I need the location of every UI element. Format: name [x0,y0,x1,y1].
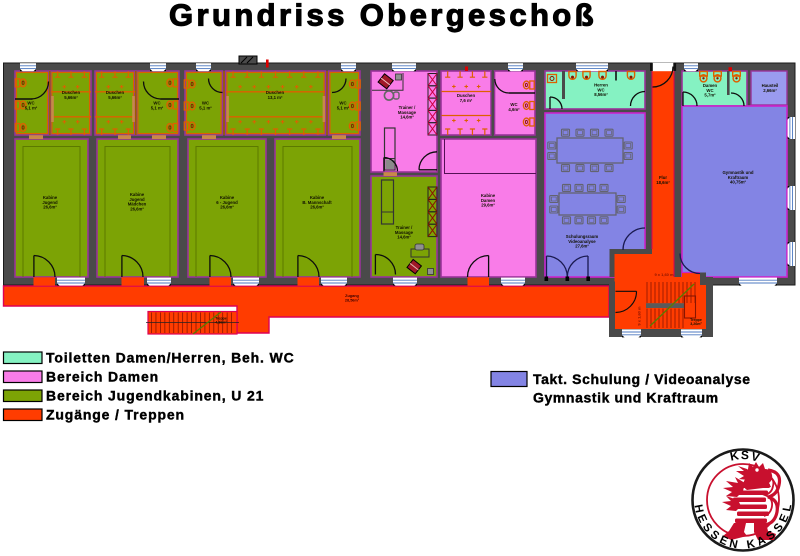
svg-text:Zugang28,56m²: Zugang28,56m² [345,294,360,302]
svg-text:Duschen5,66m²: Duschen5,66m² [62,90,81,100]
svg-text:Treppe4,36m²: Treppe4,36m² [215,317,227,325]
svg-text:Zugänge / Treppen: Zugänge / Treppen [46,407,185,423]
svg-text:KabineJugend26,6m²: KabineJugend26,6m² [42,195,58,210]
svg-text:Duschen5,66m²: Duschen5,66m² [106,90,125,100]
svg-text:Hausteil2,66m²: Hausteil2,66m² [762,83,779,93]
svg-text:Toiletten Damen/Herren, Beh. W: Toiletten Damen/Herren, Beh. WC [46,350,295,366]
svg-text:S: S [741,448,750,462]
svg-text:Bereich Damen: Bereich Damen [46,369,159,385]
svg-text:9 x 1,60 m: 9 x 1,60 m [637,306,642,326]
svg-text:Grundriss Obergeschoß: Grundriss Obergeschoß [169,0,597,32]
svg-text:Takt. Schulung / Videoanalyse: Takt. Schulung / Videoanalyse [533,371,751,387]
svg-text:9 x 1,60 m: 9 x 1,60 m [654,272,674,277]
svg-text:Bereich Jugendkabinen, U 21: Bereich Jugendkabinen, U 21 [46,388,264,404]
svg-text:Treppe3,26m²: Treppe3,26m² [690,318,702,326]
svg-text:Gymnastik und Kraftraum: Gymnastik und Kraftraum [533,390,719,406]
svg-text:KabineDamen29,6m²: KabineDamen29,6m² [481,193,496,208]
svg-text:Duschen13,1 m²: Duschen13,1 m² [266,90,285,100]
